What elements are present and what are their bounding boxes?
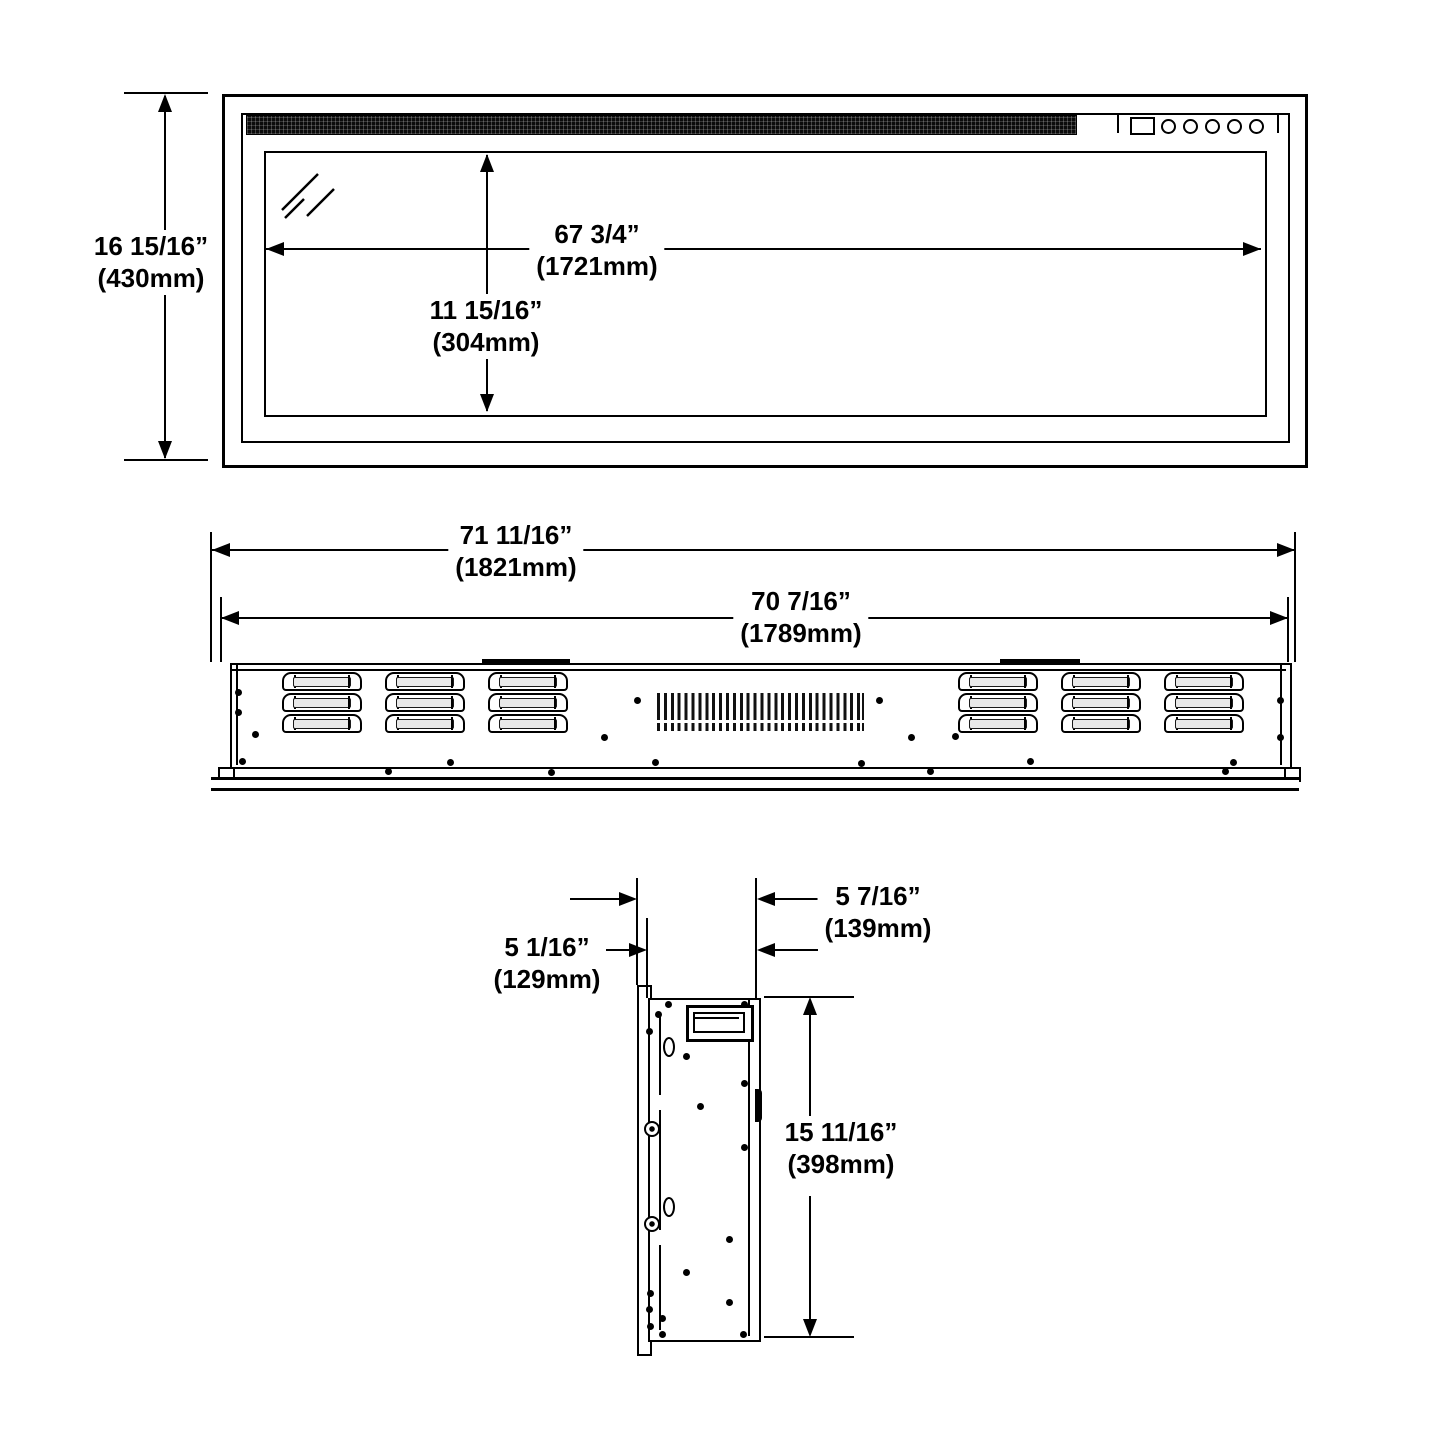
screw-dot	[647, 1290, 654, 1297]
screw-dot	[548, 769, 555, 776]
dim-body-width-label: 70 7/16” (1789mm)	[733, 585, 868, 650]
dim-glass-height-arrow-up	[480, 154, 494, 172]
dim-value-mm: (1789mm)	[740, 618, 861, 650]
dim-value-inches: 70 7/16”	[740, 586, 861, 618]
screw-dot	[908, 734, 915, 741]
dim-depth-overall-tail-right	[773, 898, 818, 900]
slot-hole	[663, 1197, 675, 1217]
vent-louver	[1164, 693, 1244, 712]
side-inner-tab-line	[659, 1015, 661, 1095]
dim-depth-overall-arrow-left	[619, 892, 637, 906]
media-mesh-strip	[246, 115, 1077, 135]
vent-louver	[1164, 714, 1244, 733]
dim-overall-width-arrow-right	[1277, 543, 1295, 557]
dim-value-inches: 71 11/16”	[455, 520, 576, 552]
rear-top-seam-line	[232, 669, 1286, 671]
screw-dot	[447, 759, 454, 766]
vent-louver	[385, 714, 465, 733]
control-button[interactable]	[1161, 119, 1176, 134]
vent-louver	[488, 693, 568, 712]
louver-slot	[499, 698, 557, 708]
screw-dot	[741, 1144, 748, 1151]
dim-side-height-arrow-down	[803, 1319, 817, 1337]
dim-glass-width-label: 67 3/4” (1721mm)	[529, 218, 664, 283]
glass-reflection-marks-icon	[276, 166, 342, 222]
screw-dot	[601, 734, 608, 741]
heater-grille-feet	[657, 723, 864, 731]
side-ext-line-body	[646, 918, 648, 998]
dim-glass-height-label: 11 15/16” (304mm)	[423, 294, 550, 359]
screw-dot	[1027, 758, 1034, 765]
dim-value-mm: (430mm)	[94, 263, 208, 295]
dim-depth-overall-tail-left	[570, 898, 621, 900]
screw-dot	[659, 1315, 666, 1322]
side-rear-seam-line	[748, 1000, 750, 1336]
dim-side-height-line-lower	[809, 1196, 811, 1322]
screw-dot	[683, 1269, 690, 1276]
screw-dot	[858, 760, 865, 767]
dim-value-inches: 67 3/4”	[536, 219, 657, 251]
screw-dot	[1277, 697, 1284, 704]
dim-depth-body-arrow-left	[629, 943, 647, 957]
vent-louver	[385, 672, 465, 691]
louver-slot	[396, 698, 454, 708]
screw-dot	[726, 1236, 733, 1243]
vent-louver	[958, 693, 1038, 712]
louver-slot	[969, 677, 1027, 687]
control-button[interactable]	[1205, 119, 1220, 134]
vent-louver	[1061, 693, 1141, 712]
screw-dot	[741, 1080, 748, 1087]
screw-dot	[1230, 759, 1237, 766]
louver-slot	[499, 719, 557, 729]
louver-slot	[1175, 719, 1233, 729]
control-button[interactable]	[1227, 119, 1242, 134]
screw-dot	[235, 709, 242, 716]
vent-louver	[1164, 672, 1244, 691]
screw-dot	[683, 1053, 690, 1060]
vent-louver	[958, 672, 1038, 691]
control-panel-divider-left	[1117, 115, 1119, 133]
louver-slot	[293, 719, 351, 729]
screw-dot	[1222, 768, 1229, 775]
screw-dot	[252, 731, 259, 738]
heater-grille-slats	[657, 693, 864, 720]
vent-louver	[1061, 672, 1141, 691]
vent-louver	[385, 693, 465, 712]
dim-depth-body-label: 5 1/16” (129mm)	[487, 931, 608, 996]
control-button[interactable]	[1249, 119, 1264, 134]
rear-right-seam-line	[1280, 665, 1282, 765]
louver-slot	[293, 698, 351, 708]
dimension-drawing: 67 3/4” (1721mm) 11 15/16” (304mm) 16 15…	[0, 0, 1445, 1445]
louver-slot	[499, 677, 557, 687]
dim-front-height-arrow-up	[158, 94, 172, 112]
screw-dot	[385, 768, 392, 775]
dim-front-height-label: 16 15/16” (430mm)	[87, 230, 215, 295]
dim-value-mm: (129mm)	[494, 964, 601, 996]
dim-glass-width-arrow-right	[1243, 242, 1261, 256]
slot-hole	[663, 1037, 675, 1057]
vent-louver	[282, 672, 362, 691]
mounting-tab-left	[482, 659, 570, 664]
screw-dot	[659, 1331, 666, 1338]
dim-front-height-arrow-down	[158, 441, 172, 459]
vent-louver	[282, 714, 362, 733]
screw-dot	[927, 768, 934, 775]
screw-dot	[647, 1323, 654, 1330]
screw-dot	[665, 1001, 672, 1008]
dim-glass-height-line	[486, 155, 488, 411]
junction-nub	[755, 1089, 762, 1122]
dim-depth-body-tail-right	[773, 949, 818, 951]
dim-value-inches: 16 15/16”	[94, 231, 208, 263]
screw-dot	[697, 1103, 704, 1110]
control-display-window	[1130, 117, 1155, 135]
screw-dot	[239, 758, 246, 765]
dim-overall-width-line	[212, 549, 1295, 551]
vent-louver	[282, 693, 362, 712]
louver-slot	[969, 719, 1027, 729]
dim-side-height-label: 15 11/16” (398mm)	[778, 1116, 905, 1181]
vent-louver	[488, 714, 568, 733]
rear-ext-line-inner-left	[220, 597, 222, 662]
mounting-tab-right	[1000, 659, 1080, 664]
dim-value-inches: 5 7/16”	[825, 881, 932, 913]
louver-slot	[1072, 698, 1130, 708]
rear-ext-line-inner-right	[1287, 597, 1289, 662]
vent-louver	[1061, 714, 1141, 733]
control-panel-divider-right	[1277, 115, 1279, 133]
louver-slot	[1072, 719, 1130, 729]
dim-value-mm: (1821mm)	[455, 552, 576, 584]
screw-dot	[235, 689, 242, 696]
dim-value-inches: 5 1/16”	[494, 932, 601, 964]
dim-front-height-tick-bottom	[124, 459, 208, 461]
louver-slot	[396, 719, 454, 729]
handle-bracket-line	[695, 1017, 739, 1019]
glass-panel	[264, 151, 1267, 417]
dim-value-mm: (304mm)	[430, 327, 543, 359]
dim-glass-width-line	[266, 248, 1261, 250]
dim-value-inches: 11 15/16”	[430, 295, 543, 327]
screw-dot	[634, 697, 641, 704]
screw-dot	[646, 1306, 653, 1313]
screw-dot	[1277, 734, 1284, 741]
screw-dot	[952, 733, 959, 740]
louver-slot	[1175, 677, 1233, 687]
screw-dot	[646, 1028, 653, 1035]
dim-side-height-line-upper	[809, 1013, 811, 1123]
dim-value-mm: (398mm)	[785, 1149, 898, 1181]
dim-glass-height-arrow-down	[480, 394, 494, 412]
louver-slot	[1175, 698, 1233, 708]
dim-overall-width-label: 71 11/16” (1821mm)	[448, 519, 583, 584]
control-button[interactable]	[1183, 119, 1198, 134]
vent-louver	[488, 672, 568, 691]
dim-value-mm: (139mm)	[825, 913, 932, 945]
louver-slot	[969, 698, 1027, 708]
dim-body-width-arrow-right	[1270, 611, 1288, 625]
dim-glass-width-arrow-left	[266, 242, 284, 256]
louver-slot	[293, 677, 351, 687]
dim-body-width-arrow-left	[221, 611, 239, 625]
dim-depth-overall-label: 5 7/16” (139mm)	[818, 880, 939, 945]
screw-dot	[726, 1299, 733, 1306]
screw-head	[644, 1121, 660, 1137]
screw-dot	[876, 697, 883, 704]
base-trim-bar	[211, 777, 1299, 791]
louver-slot	[1072, 677, 1130, 687]
dim-value-inches: 15 11/16”	[785, 1117, 898, 1149]
screw-dot	[740, 1331, 747, 1338]
handle-bracket-inner	[693, 1012, 745, 1033]
louver-slot	[396, 677, 454, 687]
dim-value-mm: (1721mm)	[536, 251, 657, 283]
screw-dot	[652, 759, 659, 766]
screw-dot	[741, 1001, 748, 1008]
dim-overall-width-arrow-left	[212, 543, 230, 557]
screw-head	[644, 1216, 660, 1232]
screw-dot	[655, 1011, 662, 1018]
vent-louver	[958, 714, 1038, 733]
